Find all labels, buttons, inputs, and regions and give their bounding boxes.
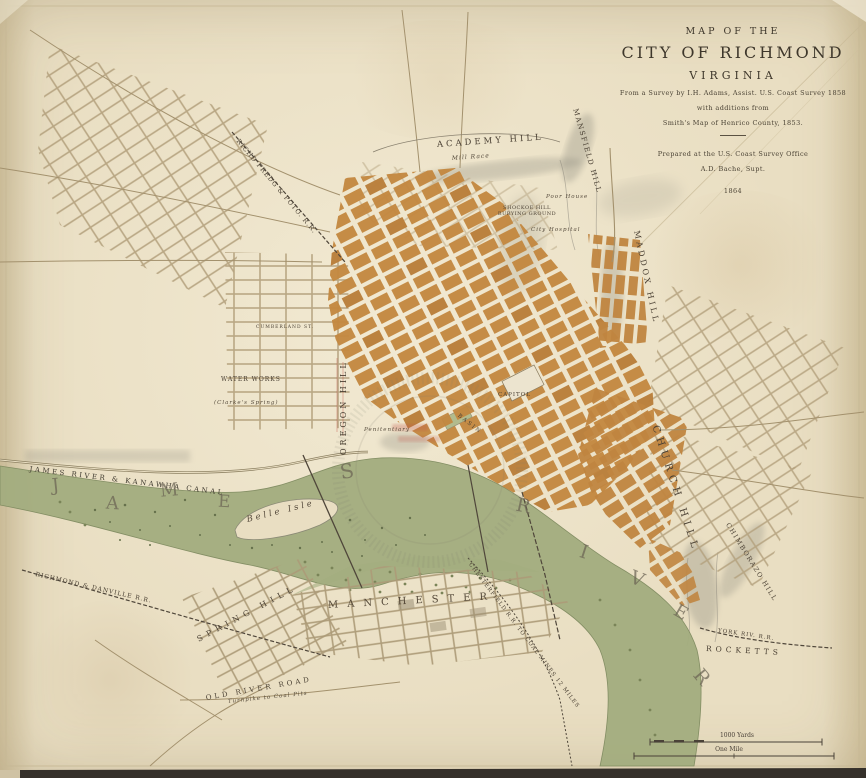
scan-edge — [0, 768, 866, 778]
label-oregon-hill: OREGON HILL — [340, 360, 349, 455]
map-subtitle: VIRGINIA — [613, 69, 853, 82]
title-block: MAP OF THE CITY OF RICHMOND VIRGINIA Fro… — [613, 26, 853, 195]
label-city-hospital: City Hospital — [531, 227, 581, 233]
river-letter-m: M — [159, 481, 179, 501]
river-letter-a: A — [105, 495, 119, 514]
map-title: CITY OF RICHMOND — [613, 43, 853, 62]
prepared-line1: Prepared at the U.S. Coast Survey Office — [613, 150, 853, 158]
map-year: 1864 — [613, 187, 853, 195]
label-clarkes-spring: (Clarke's Spring) — [214, 400, 279, 406]
river-letter-e: E — [218, 494, 231, 512]
additions-line2: Smith's Map of Henrico County, 1853. — [613, 119, 853, 127]
label-cumberland-st: CUMBERLAND ST. — [256, 326, 314, 331]
prepared-line2: A.D. Bache, Supt. — [613, 165, 853, 173]
map-kicker: MAP OF THE — [613, 26, 853, 37]
scale-yards-label: 1000 Yards — [720, 732, 754, 739]
label-capitol: CAPITOL — [498, 392, 531, 398]
scale-mile-label: One Mile — [715, 746, 743, 753]
label-penitentiary: Penitentiary — [364, 427, 410, 433]
survey-credit: From a Survey by I.H. Adams, Assist. U.S… — [613, 89, 853, 97]
richmond-map-scan: 1000 Yards One Mile ACADEMY HILL MANSFIE… — [0, 0, 866, 778]
additions-line1: with additions from — [613, 104, 853, 112]
label-poor-house: Poor House — [546, 194, 588, 200]
label-shockoe-cemetery: SHOCKOE HILL BURYING GROUND — [496, 206, 558, 217]
red-stamp-mark — [398, 436, 440, 442]
label-water-works: WATER WORKS — [221, 377, 281, 384]
title-rule — [720, 135, 746, 136]
